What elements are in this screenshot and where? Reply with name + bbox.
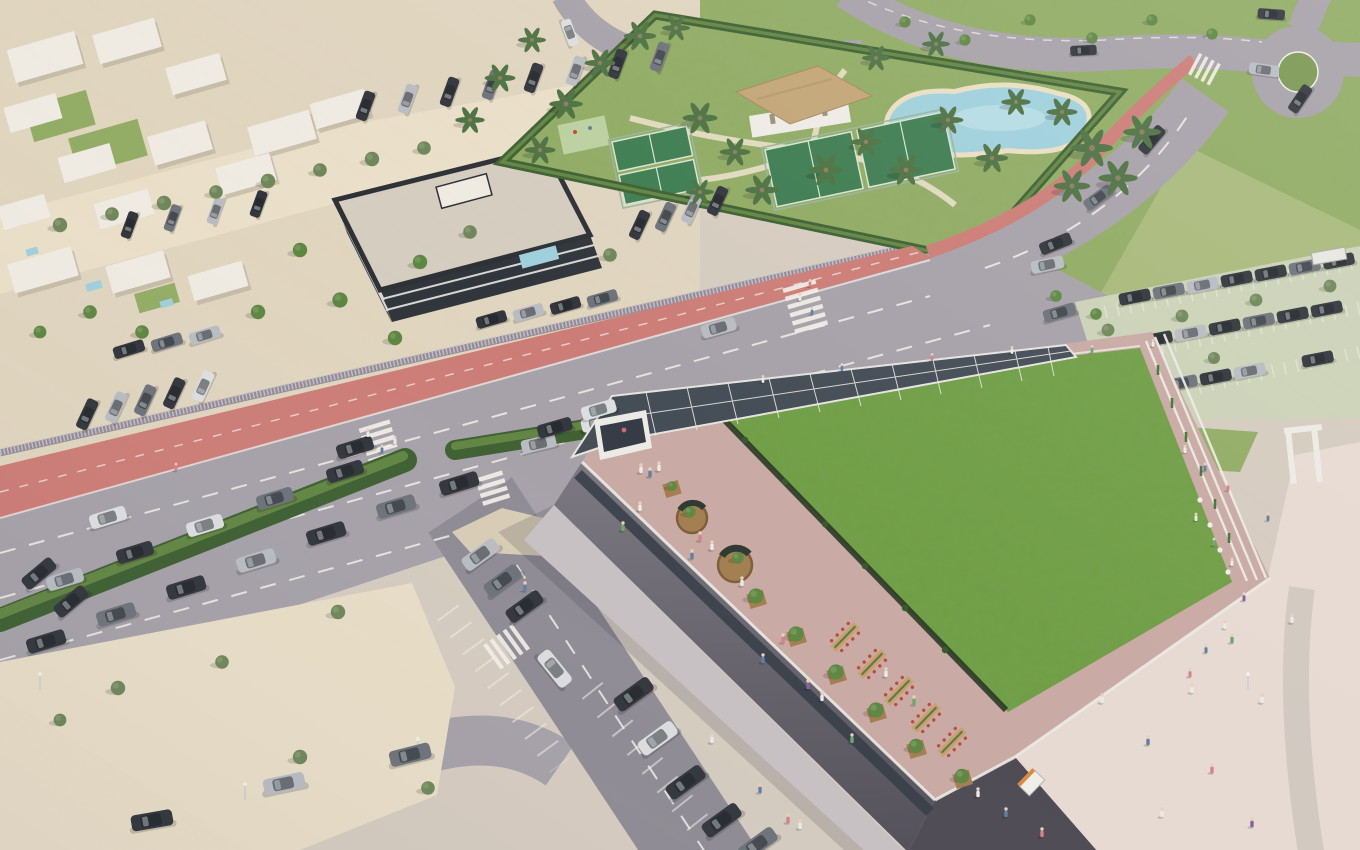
aerial-render [0, 0, 1360, 850]
render-canvas [0, 0, 1360, 850]
light-overlay [0, 0, 1360, 850]
